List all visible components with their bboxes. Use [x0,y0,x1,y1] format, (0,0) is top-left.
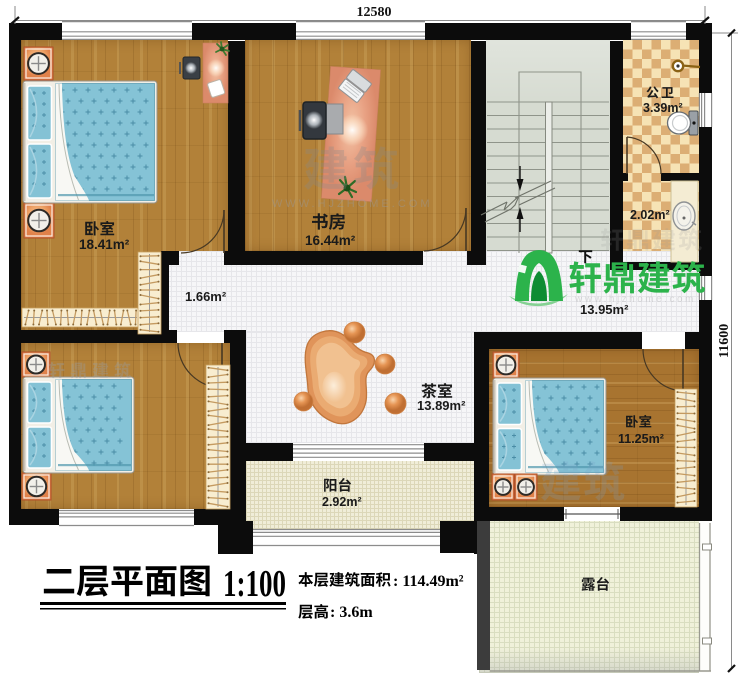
svg-text:1:100: 1:100 [223,563,286,605]
svg-text:12580: 12580 [357,5,392,20]
svg-text:2.02m²: 2.02m² [630,208,670,222]
svg-text:11600: 11600 [717,324,732,358]
svg-text:16.44m²: 16.44m² [305,233,356,248]
svg-text:3.39m²: 3.39m² [643,101,683,115]
svg-text:13.95m²: 13.95m² [580,302,629,317]
svg-text:11.25m²: 11.25m² [618,432,664,446]
svg-text:1.66m²: 1.66m² [185,289,227,304]
svg-text:WWW.HJZHOME.COM: WWW.HJZHOME.COM [272,198,432,210]
svg-text:18.41m²: 18.41m² [79,237,130,252]
svg-text:: 114.49m²: : 114.49m² [393,573,464,590]
svg-text:13.89m²: 13.89m² [417,398,466,413]
svg-text:: 3.6m: : 3.6m [330,604,373,621]
svg-text:2.92m²: 2.92m² [322,495,362,509]
